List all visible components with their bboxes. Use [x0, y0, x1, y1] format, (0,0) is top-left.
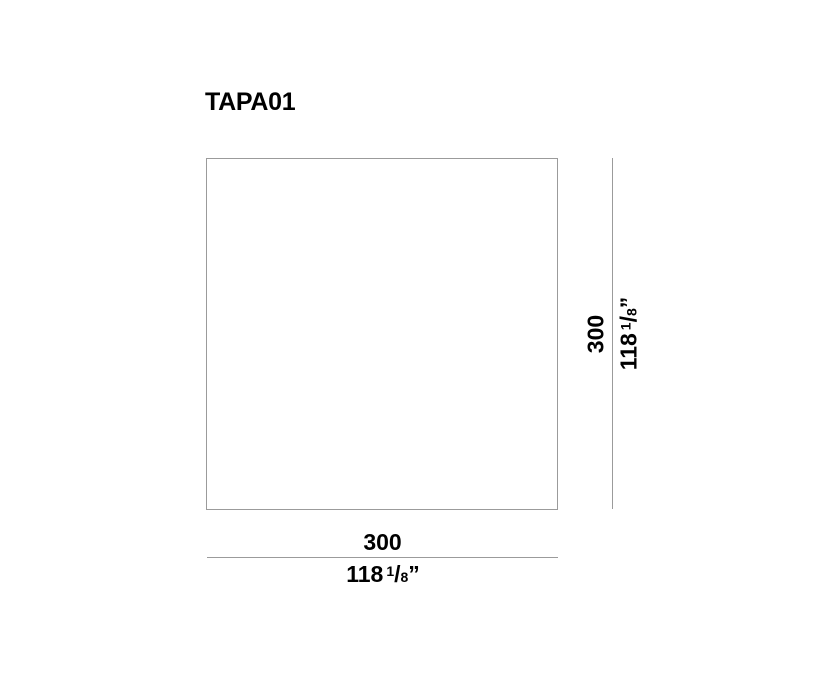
- vertical-dim-inch-label: 1181/8”: [615, 298, 644, 371]
- vertical-inch-fraction-denominator: 8: [624, 308, 640, 316]
- vertical-inch-whole: 118: [616, 333, 642, 370]
- panel-outline: [206, 158, 558, 510]
- vertical-dimension-line: [612, 158, 613, 509]
- product-code-title: TAPA01: [205, 90, 295, 115]
- horizontal-inch-whole: 118: [346, 561, 383, 587]
- horizontal-dim-mm-label: 300: [207, 531, 558, 554]
- vertical-inch-unit-mark: ”: [616, 298, 642, 309]
- horizontal-dim-inch-label: 1181/8”: [207, 560, 558, 589]
- vertical-dim-mm-label: 300: [585, 315, 608, 353]
- vertical-inch-fraction-slash: /: [616, 316, 642, 322]
- dimension-drawing-page: TAPA01 300 1181/8” 300 1181/8”: [0, 0, 840, 679]
- horizontal-inch-fraction-numerator: 1: [386, 563, 394, 579]
- horizontal-inch-unit-mark: ”: [408, 561, 419, 587]
- vertical-inch-fraction-numerator: 1: [618, 322, 634, 330]
- horizontal-dimension-line: [207, 557, 558, 558]
